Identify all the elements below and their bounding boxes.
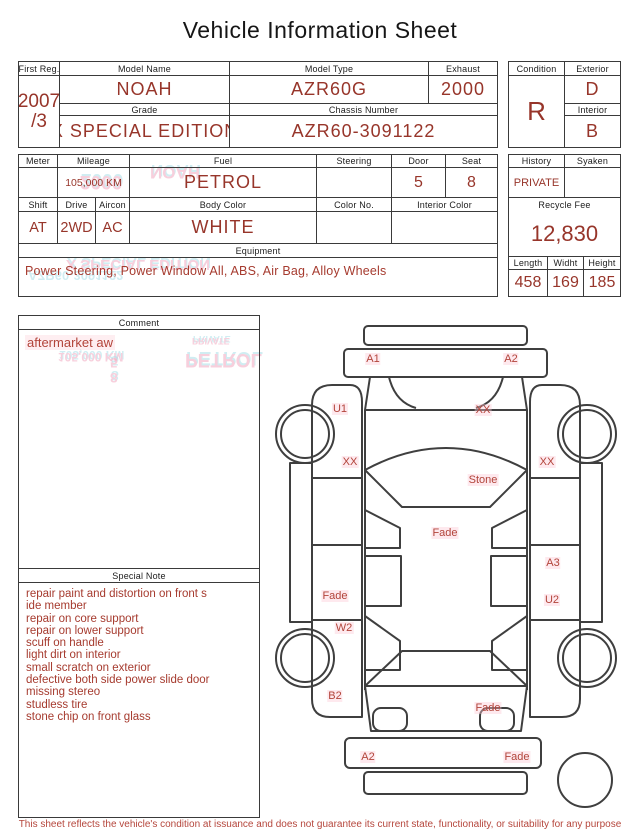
body-color-value: WHITE: [130, 212, 317, 244]
special-note-line: defective both side power slide door: [26, 674, 255, 686]
history-section: History PRIVATE Syaken: [509, 155, 620, 198]
width-label: Widht: [548, 257, 584, 270]
rear-tab-left: [373, 708, 407, 731]
recycle-fee-section: Recycle Fee 12,830: [509, 198, 620, 257]
special-note-line: scuff on handle: [26, 637, 255, 649]
length-value: 458: [509, 270, 548, 296]
exterior-value: D: [565, 76, 620, 104]
damage-label-b2: B2: [327, 690, 342, 702]
door-value: 5: [392, 168, 446, 198]
chassis-number-value: AZR60-3091122: [230, 116, 497, 147]
damage-label-xx-right: XX: [539, 456, 556, 468]
damage-label-fade-left: Fade: [321, 590, 348, 602]
special-note-line: ide member: [26, 600, 255, 612]
special-note-line: repair on core support: [26, 613, 255, 625]
front-wheel-left-rim: [281, 410, 329, 458]
seat-value: 8: [446, 168, 497, 198]
front-wheel-left: [276, 405, 334, 463]
model-type-label: Model Type: [230, 62, 429, 76]
registration-table: First Reg. 2007 /3 Model Name NOAH Grade…: [18, 61, 498, 148]
side-box-right: [491, 556, 527, 606]
interior-color-value: [392, 212, 497, 244]
c-pillar-flap-right: [492, 616, 527, 670]
condition-table: Condition R Exterior D Interior B: [508, 61, 621, 148]
special-note-line: stone chip on front glass: [26, 711, 255, 723]
exhaust-label: Exhaust: [429, 62, 497, 76]
damage-label-w2: W2: [335, 622, 354, 634]
disclaimer-text: This sheet reflects the vehicle's condit…: [0, 819, 640, 830]
special-note-area: repair paint and distortion on front s i…: [19, 583, 259, 817]
door-label: Door: [392, 155, 446, 168]
interior-value: B: [565, 116, 620, 147]
comment-text: aftermarket aw: [25, 335, 115, 350]
meter-label: Meter: [19, 155, 58, 168]
mileage-value: 105,000 KM: [58, 168, 130, 198]
damage-label-a3: A3: [545, 557, 560, 569]
windshield: [365, 448, 527, 507]
comment-box: Comment aftermarket aw Special Note repa…: [18, 315, 260, 818]
pillar-flap-left: [365, 510, 400, 548]
syaken-label: Syaken: [565, 155, 620, 168]
first-reg-month: /3: [31, 112, 47, 132]
special-note-line: missing stereo: [26, 686, 255, 698]
model-name-label: Model Name: [60, 62, 230, 76]
details-table: Meter Mileage 105,000 KM Fuel PETROL Ste…: [18, 154, 498, 297]
recycle-fee-value: 12,830: [509, 212, 620, 256]
headlight-left: [389, 377, 416, 408]
car-outline: [270, 310, 640, 835]
syaken-value: [565, 168, 620, 197]
damage-label-a2-rear: A2: [360, 751, 375, 763]
rear-window: [365, 651, 527, 686]
special-note-line: repair paint and distortion on front s: [26, 588, 255, 600]
model-name-value: NOAH: [60, 76, 230, 104]
body-color-label: Body Color: [130, 198, 317, 212]
page-title: Vehicle Information Sheet: [0, 17, 640, 44]
damage-label-stone: Stone: [468, 474, 499, 486]
pillar-flap-right: [492, 510, 527, 548]
rear-wheel-right: [558, 629, 616, 687]
chassis-number-label: Chassis Number: [230, 104, 497, 116]
meter-value: [19, 168, 58, 198]
spare-wheel: [558, 753, 612, 807]
history-value: PRIVATE: [509, 168, 565, 197]
front-door-right: [530, 478, 580, 545]
front-bumper-strip: [364, 326, 527, 345]
rear-wheel-right-rim: [563, 634, 611, 682]
aircon-label: Aircon: [96, 198, 130, 212]
equipment-value: Power Steering, Power Window All, ABS, A…: [19, 258, 497, 296]
exhaust-value: 2000: [429, 76, 497, 104]
special-note-line: small scratch on exterior: [26, 662, 255, 674]
equipment-label: Equipment: [19, 244, 497, 258]
damage-label-fade-roof: Fade: [431, 527, 458, 539]
seat-label: Seat: [446, 155, 497, 168]
width-value: 169: [548, 270, 584, 296]
front-wheel-right: [558, 405, 616, 463]
rocker-strip-left: [290, 463, 312, 622]
rear-bumper-strip: [364, 772, 527, 794]
special-note-line: light dirt on interior: [26, 649, 255, 661]
shift-value: AT: [19, 212, 58, 244]
special-note-header: Special Note: [19, 569, 259, 583]
rear-wheel-left-rim: [281, 634, 329, 682]
interior-label: Interior: [565, 104, 620, 116]
height-value: 185: [584, 270, 620, 296]
condition-label: Condition: [509, 62, 565, 76]
condition-value: R: [509, 76, 565, 147]
damage-label-fade-rear: Fade: [503, 751, 530, 763]
drive-label: Drive: [58, 198, 96, 212]
exterior-label: Exterior: [565, 62, 620, 76]
special-note-line: repair on lower support: [26, 625, 255, 637]
damage-label-fade-rear-window: Fade: [474, 702, 501, 714]
dimensions-section: Length 458 Widht 169 Height 185: [509, 257, 620, 296]
grade-label: Grade: [60, 104, 230, 116]
fuel-value: PETROL: [130, 168, 317, 198]
history-fee-table: History PRIVATE Syaken Recycle Fee 12,83…: [508, 154, 621, 297]
damage-label-a1: A1: [365, 353, 380, 365]
hood: [365, 377, 527, 410]
recycle-fee-label: Recycle Fee: [509, 198, 620, 212]
quarter-panel-left: [312, 620, 362, 717]
steering-label: Steering: [317, 155, 392, 168]
first-reg-year: 2007: [19, 92, 60, 112]
history-label: History: [509, 155, 565, 168]
front-wheel-right-rim: [563, 410, 611, 458]
first-reg-value: 2007 /3: [19, 76, 60, 147]
rear-wheel-left: [276, 629, 334, 687]
special-note-line: studless tire: [26, 699, 255, 711]
vehicle-information-sheet: NOAH 2000 X SPECIAL EDITION AZR60-309112…: [0, 0, 640, 835]
damage-label-a2-front: A2: [503, 353, 518, 365]
shift-label: Shift: [19, 198, 58, 212]
grade-value: X SPECIAL EDITION: [60, 116, 230, 147]
slide-door-left: [312, 545, 362, 620]
steering-value: [317, 168, 392, 198]
interior-color-label: Interior Color: [392, 198, 497, 212]
side-box-left: [365, 556, 401, 606]
model-type-value: AZR60G: [230, 76, 429, 104]
length-label: Length: [509, 257, 548, 270]
quarter-panel-right: [530, 620, 580, 717]
first-reg-label: First Reg.: [19, 62, 60, 76]
damage-label-xx-windshield: XX: [475, 404, 492, 416]
rocker-strip-right: [580, 463, 602, 622]
drive-value: 2WD: [58, 212, 96, 244]
damage-label-u2: U2: [544, 594, 560, 606]
fuel-label: Fuel: [130, 155, 317, 168]
color-no-label: Color No.: [317, 198, 392, 212]
damage-label-xx-left: XX: [342, 456, 359, 468]
comment-area: aftermarket aw: [19, 330, 259, 569]
mileage-label: Mileage: [58, 155, 130, 168]
car-damage-diagram: A1 A2 U1 XX XX XX Stone Fade A3 Fade U2 …: [270, 310, 640, 835]
front-door-left: [312, 478, 362, 545]
comment-header: Comment: [19, 316, 259, 330]
color-no-value: [317, 212, 392, 244]
height-label: Height: [584, 257, 620, 270]
c-pillar-flap-left: [365, 616, 400, 670]
damage-label-u1: U1: [332, 403, 348, 415]
aircon-value: AC: [96, 212, 130, 244]
